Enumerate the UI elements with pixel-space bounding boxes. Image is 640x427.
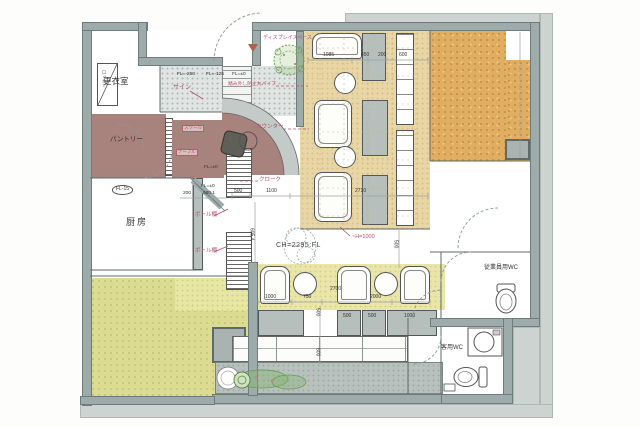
- label-dim-680: 680.1: [203, 191, 215, 196]
- kitchen-shelf-band: [193, 178, 203, 270]
- wall: [82, 22, 92, 406]
- label-low-table: テーブル: [176, 149, 198, 156]
- label-fl-0-waiting: FL=±0: [204, 165, 218, 170]
- booth-sofa: [337, 266, 371, 304]
- wall: [248, 262, 258, 396]
- label-dim-200: 200: [183, 191, 191, 196]
- lounge-armchair: [314, 172, 352, 222]
- wall: [430, 318, 540, 327]
- label-fl-0-entry: FL=±0: [232, 72, 246, 77]
- wall: [296, 31, 304, 127]
- dim-1085: 1085: [323, 53, 334, 59]
- dim-750: 750: [303, 295, 311, 301]
- exterior-step-bottom-right: [513, 327, 540, 405]
- exterior-band-bottom: [80, 404, 553, 418]
- dim-1000-booth: 1000: [265, 295, 276, 301]
- label-pipe-guard: 踏み外し防止丸パイプ: [228, 82, 276, 87]
- label-fl-0-cloak: FL=±0: [201, 184, 215, 189]
- lounge-sofa: [312, 33, 362, 59]
- booth-table: [258, 310, 304, 336]
- lounge-round-table: [334, 72, 356, 94]
- dim-table-500b: 500: [368, 314, 376, 320]
- dim-500-v: 500: [392, 240, 398, 248]
- label-fl-125: FL=-125: [206, 72, 224, 77]
- wall: [503, 318, 513, 404]
- floor-plan: 更衣室 ロッカー パントリー 厨房 従業員用WC 客用WC FL=-250 FL…: [0, 0, 640, 427]
- label-employee-wc: 従業員用WC: [484, 265, 518, 272]
- dim-500-hall: 500: [234, 189, 242, 195]
- wall: [252, 22, 540, 31]
- wall: [212, 394, 442, 404]
- dim-200: 200: [378, 53, 386, 59]
- booth-round-table: [293, 272, 317, 296]
- label-bottle-shelf-2: ボトル棚: [195, 248, 217, 254]
- dim-table-1000: 1000: [404, 314, 415, 320]
- wall: [438, 394, 513, 404]
- corner-cabinet: [505, 139, 530, 160]
- lounge-table: [362, 100, 388, 156]
- entry-tile: [252, 66, 298, 116]
- room-top-right-fill: [430, 31, 506, 161]
- label-kitchen: 厨房: [126, 218, 148, 228]
- dim-booth-500v: 500: [314, 308, 320, 316]
- lounge-long-table: [396, 130, 414, 226]
- booth-round-table: [374, 272, 398, 296]
- label-display-space: ディスプレイスペース: [263, 36, 312, 42]
- dim-2000: 2000: [370, 295, 381, 301]
- label-handrail-height: ~H=1000: [352, 234, 375, 240]
- label-customer-wc: 客用WC: [441, 345, 463, 352]
- lounge-round-table: [334, 146, 356, 168]
- lounge-armchair: [314, 100, 352, 148]
- dim-1100: 1100: [266, 189, 277, 195]
- label-counter: カウンター: [256, 124, 284, 130]
- dim-2710: 2710: [355, 189, 366, 195]
- dim-2700: 2700: [330, 287, 341, 293]
- label-cloak: クローク: [259, 177, 281, 183]
- label-sign: サイン: [173, 85, 191, 92]
- wall: [80, 396, 215, 405]
- wall: [530, 22, 540, 327]
- label-stool: スツール: [182, 125, 204, 132]
- label-ceiling-height: CH=2295:FL: [276, 242, 321, 250]
- label-locker: ロッカー: [101, 70, 106, 88]
- dim-600: 600: [399, 53, 407, 59]
- label-pantry: パントリー: [110, 136, 143, 143]
- dim-booth-600v: 600: [314, 348, 320, 356]
- dim-table-500a: 500: [343, 314, 351, 320]
- lounge-table: [362, 175, 388, 225]
- exterior-band-right: [540, 13, 553, 408]
- dim-450: 450: [361, 53, 369, 59]
- booth-sofa: [400, 266, 430, 304]
- lounge-long-table: [396, 33, 414, 125]
- label-fl-15-kitchen: FL-15: [112, 185, 133, 195]
- label-fl-250: FL=-250: [177, 72, 195, 77]
- label-bottle-shelf-1: ボトル棚: [195, 212, 217, 218]
- room-pantry-fill: [90, 114, 166, 178]
- dim-605: 605.4: [248, 228, 254, 241]
- wall: [138, 57, 223, 66]
